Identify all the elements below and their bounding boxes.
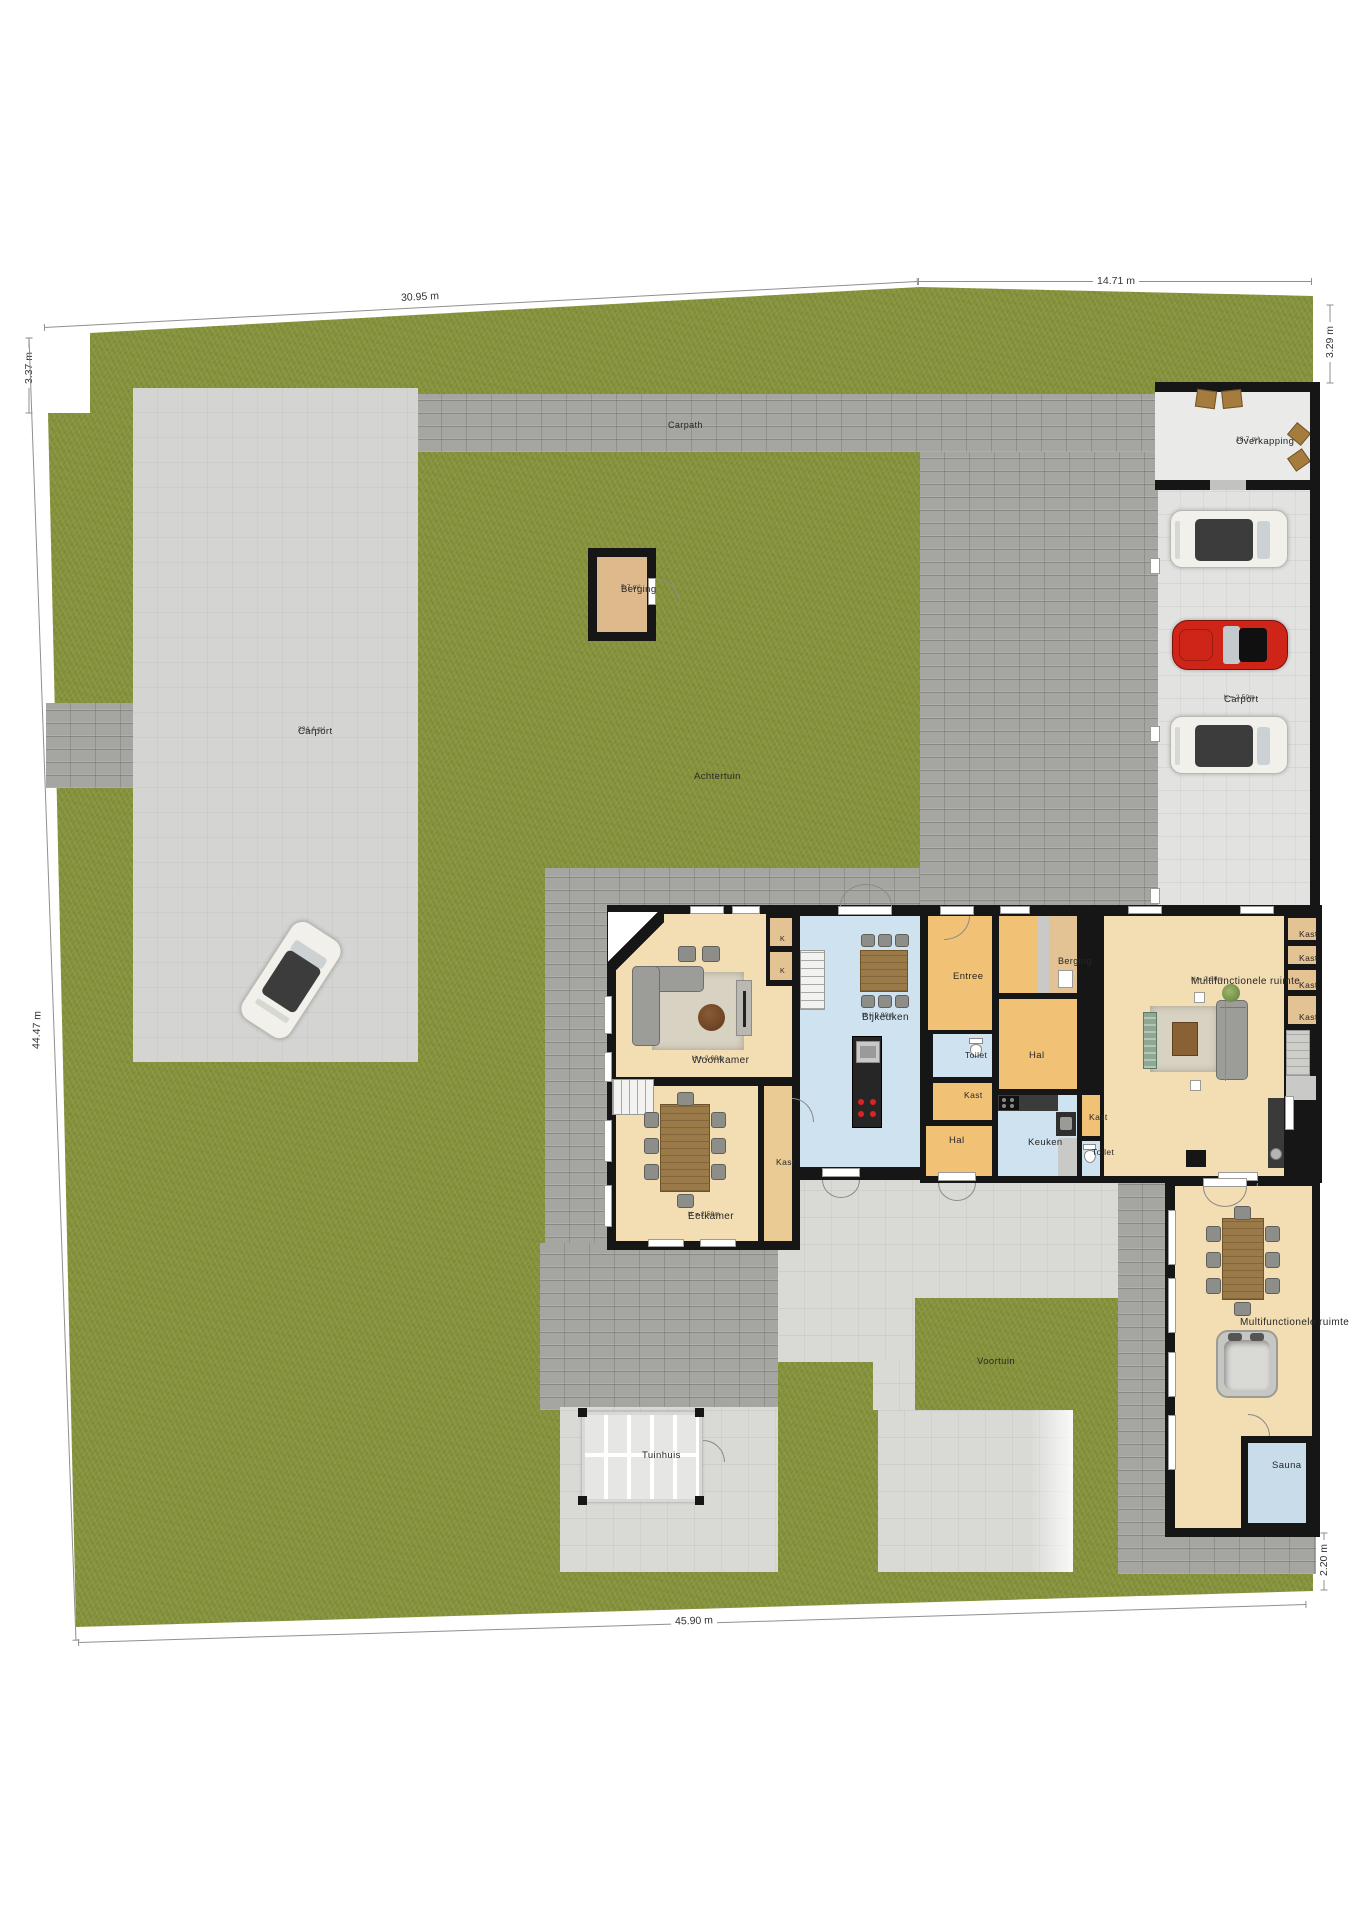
overkapping-passage xyxy=(1210,480,1246,490)
dim-right-bottom-label: 2.20 m xyxy=(1318,1540,1330,1580)
driveway-fade xyxy=(1030,1410,1073,1572)
hal-2-south-door xyxy=(938,1172,976,1181)
chair xyxy=(895,934,909,947)
sw-window xyxy=(1168,1210,1176,1265)
sauna-floor xyxy=(1248,1443,1306,1523)
hal-2-label-text: Hal xyxy=(949,1135,964,1147)
keuken-sink-unit xyxy=(1056,1112,1076,1136)
window xyxy=(604,1185,612,1227)
dining-chair xyxy=(1206,1278,1221,1294)
east-courtyard-paving xyxy=(920,452,1160,913)
mf1-stairs xyxy=(1286,1030,1310,1076)
mf2-table xyxy=(1222,1218,1264,1300)
bijkeuken-table xyxy=(860,950,908,992)
bijkeuken-stairs xyxy=(800,950,825,1010)
site-floor-plan: CarpathOverkapping18.7 m²Berging5.7 m²Ca… xyxy=(0,0,1358,1920)
dining-chair xyxy=(1234,1206,1251,1220)
hal-1-floor xyxy=(999,999,1077,1089)
carpath-label-text: Carpath xyxy=(668,420,703,431)
corner-sofa-arm xyxy=(632,966,660,1046)
dim-right-top-label: 3.29 m xyxy=(1324,322,1336,362)
carport-post xyxy=(1150,888,1160,904)
sw-window xyxy=(1168,1278,1176,1333)
kast-a-label-text: Kast xyxy=(964,1090,983,1101)
south-courtyard-paving xyxy=(540,1243,778,1410)
sw-north-door xyxy=(1203,1178,1247,1187)
chair xyxy=(861,934,875,947)
floor-marker xyxy=(1194,992,1205,1003)
woonkamer-label-sub: H = 2.60m xyxy=(692,1055,724,1063)
window xyxy=(1000,906,1030,914)
kast-col-4-label-text: Kast xyxy=(1299,1012,1318,1023)
woonkamer-floor-east xyxy=(766,986,792,1077)
front-concrete-3 xyxy=(873,1360,915,1410)
bijkeuken-french-doors xyxy=(838,906,892,915)
tuinhuis-corner xyxy=(578,1408,587,1417)
achtertuin-label-text: Achtertuin xyxy=(694,771,741,783)
dining-chair xyxy=(1265,1226,1280,1242)
sauna-label-text: Sauna xyxy=(1272,1460,1301,1472)
kast-col-1-label-text: Kast xyxy=(1299,929,1318,940)
tuinhuis-label-text: Tuinhuis xyxy=(642,1450,681,1462)
chair xyxy=(895,995,909,1008)
kast-col-3-label-text: Kast xyxy=(1299,980,1318,991)
voortuin-label-text: Voortuin xyxy=(977,1356,1015,1368)
tv-console xyxy=(736,980,752,1036)
dining-chair xyxy=(677,1194,694,1208)
window xyxy=(604,1052,612,1082)
white-suv-top xyxy=(1170,510,1288,568)
carport-east-wall xyxy=(1310,382,1320,905)
dim-top-left-label: 30.95 m xyxy=(397,290,444,304)
white-suv-bottom xyxy=(1170,716,1288,774)
carport-area-label-sub: 234.4 m² xyxy=(298,726,325,734)
hal-2-floor xyxy=(926,1126,992,1176)
berging-niche xyxy=(1058,970,1073,988)
carpath-paving xyxy=(417,394,1160,452)
window xyxy=(732,906,760,914)
keuken-label-text: Keuken xyxy=(1028,1137,1063,1149)
dining-chair xyxy=(711,1164,726,1180)
dining-table xyxy=(660,1104,710,1192)
window xyxy=(1128,906,1162,914)
jacuzzi xyxy=(1216,1330,1278,1398)
dim-bottom-label: 45.90 m xyxy=(671,1614,717,1627)
toilet-2-label-text: Toilet xyxy=(1092,1147,1114,1158)
front-path-paving xyxy=(1118,1168,1170,1574)
coffee-table-round xyxy=(698,1004,725,1031)
kast-a-floor xyxy=(933,1083,992,1120)
kast-col-2-label-text: Kast xyxy=(1299,953,1318,964)
chair xyxy=(861,995,875,1008)
dim-top-right-label: 14.71 m xyxy=(1093,275,1139,287)
kast-b-label-text: Kast xyxy=(1089,1112,1108,1123)
woonkamer-corner-chamfer xyxy=(608,912,664,974)
eetkamer-stairs xyxy=(612,1079,654,1115)
kitchen-island xyxy=(852,1036,882,1128)
window xyxy=(1240,906,1274,914)
hal-1-label-text: Hal xyxy=(1029,1050,1044,1062)
dining-chair xyxy=(644,1112,659,1128)
tuinhuis-corner xyxy=(578,1496,587,1505)
carport-structure-label-sub: h = 2.50m xyxy=(1224,694,1255,702)
toilet-1-label-text: Toilet xyxy=(965,1050,987,1061)
entree-door xyxy=(940,906,974,915)
garden-bench xyxy=(1143,1012,1157,1069)
hal-upper-floor xyxy=(999,916,1037,993)
entree-label-text: Entree xyxy=(953,971,983,983)
window xyxy=(690,906,724,914)
window xyxy=(700,1239,736,1247)
carport-post xyxy=(1150,558,1160,574)
mf1-sofa xyxy=(1216,1000,1248,1080)
window xyxy=(604,1120,612,1162)
closet-k1-label-text: K xyxy=(780,936,785,945)
sw-window xyxy=(1168,1352,1176,1397)
dining-chair xyxy=(644,1164,659,1180)
keuken-stove xyxy=(999,1096,1019,1110)
dim-left-label: 44.47 m xyxy=(30,1007,44,1053)
berging-garden-label-sub: 5.7 m² xyxy=(621,584,641,592)
berging-house-corridor xyxy=(1037,916,1049,993)
dining-chair xyxy=(1206,1226,1221,1242)
carport-post xyxy=(1150,726,1160,742)
eetkamer-label-sub: H = 2.59m xyxy=(688,1211,720,1219)
front-concrete-2 xyxy=(778,1296,915,1362)
multifunctionele-1-label-sub: H = 2.30m xyxy=(1191,976,1223,984)
window xyxy=(604,996,612,1034)
west-house-paving xyxy=(545,905,610,1250)
bench-icon xyxy=(1221,389,1243,409)
tuinhuis-corner xyxy=(695,1408,704,1417)
mf1-coffee-table xyxy=(1172,1022,1198,1056)
kast-eetkamer-label-text: Kast xyxy=(776,1157,795,1168)
dining-chair xyxy=(1206,1252,1221,1268)
closet-k2-label-text: K xyxy=(780,968,785,977)
multifunctionele-2-label-text: Multifunctionele ruimte xyxy=(1240,1317,1349,1330)
mf1-south-window xyxy=(1285,1096,1294,1130)
overkapping-label-sub: 18.7 m² xyxy=(1236,436,1259,444)
dining-chair xyxy=(711,1138,726,1154)
armchair xyxy=(702,946,720,962)
dining-chair xyxy=(677,1092,694,1106)
dining-chair xyxy=(1234,1302,1251,1316)
dining-chair xyxy=(1265,1278,1280,1294)
armchair xyxy=(678,946,696,962)
dining-chair xyxy=(644,1138,659,1154)
dining-chair xyxy=(1265,1252,1280,1268)
mf1-bar xyxy=(1268,1098,1284,1168)
chair xyxy=(878,934,892,947)
berging-house-label-text: Berging xyxy=(1058,956,1092,967)
bijkeuken-south-door xyxy=(822,1168,860,1177)
bench-icon xyxy=(1195,389,1217,410)
tuinhuis-corner xyxy=(695,1496,704,1505)
dining-chair xyxy=(711,1112,726,1128)
sw-window xyxy=(1168,1415,1176,1470)
red-car xyxy=(1172,620,1288,670)
bijkeuken-label-sub: H = 2.90m xyxy=(862,1012,894,1020)
chair xyxy=(878,995,892,1008)
window xyxy=(648,1239,684,1247)
floor-marker xyxy=(1190,1080,1201,1091)
mf1-stove-block xyxy=(1186,1150,1206,1167)
